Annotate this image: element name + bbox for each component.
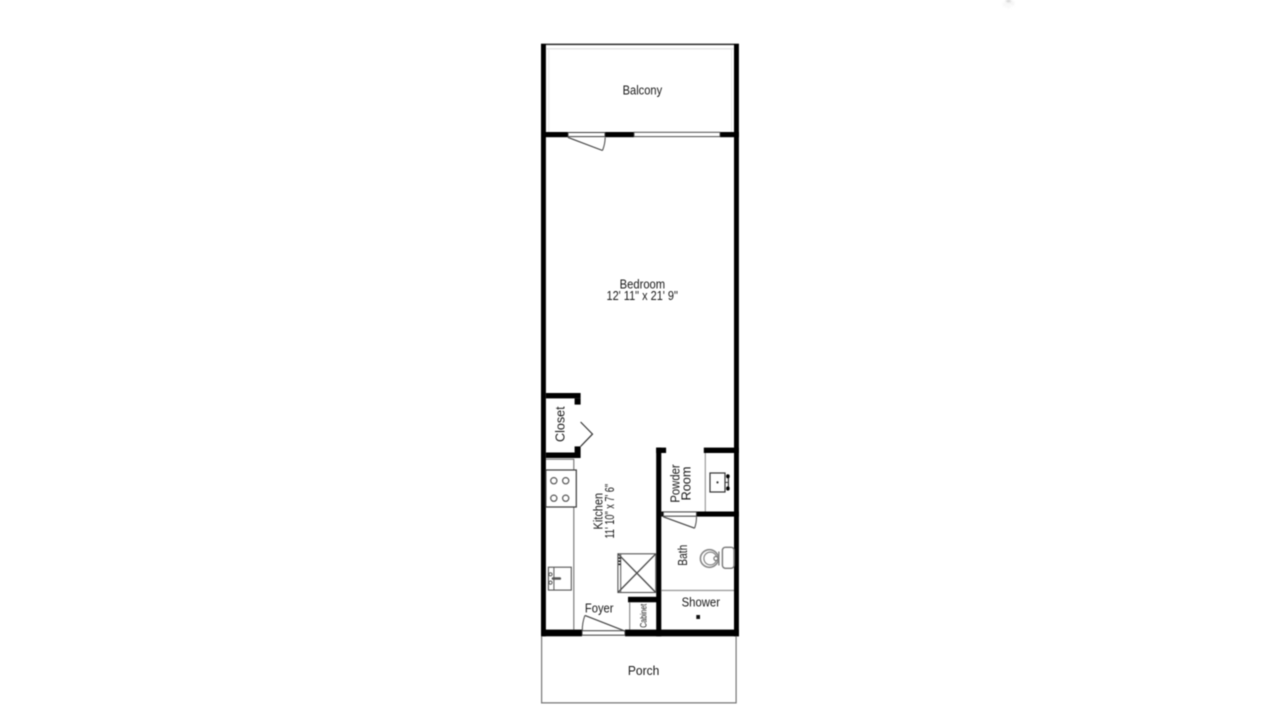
svg-text:12' 11" x 21' 9": 12' 11" x 21' 9" (607, 288, 679, 303)
svg-text:Closet: Closet (553, 406, 568, 442)
svg-text:Foyer: Foyer (585, 600, 614, 615)
svg-text:11' 10" x 7' 6": 11' 10" x 7' 6" (602, 484, 617, 539)
svg-text:Shower: Shower (682, 595, 721, 610)
svg-text:Bath: Bath (675, 545, 690, 566)
svg-text:Room: Room (679, 467, 694, 501)
svg-text:Porch: Porch (628, 663, 659, 678)
svg-text:Balcony: Balcony (623, 83, 663, 98)
svg-text:Cabinet: Cabinet (639, 603, 649, 627)
